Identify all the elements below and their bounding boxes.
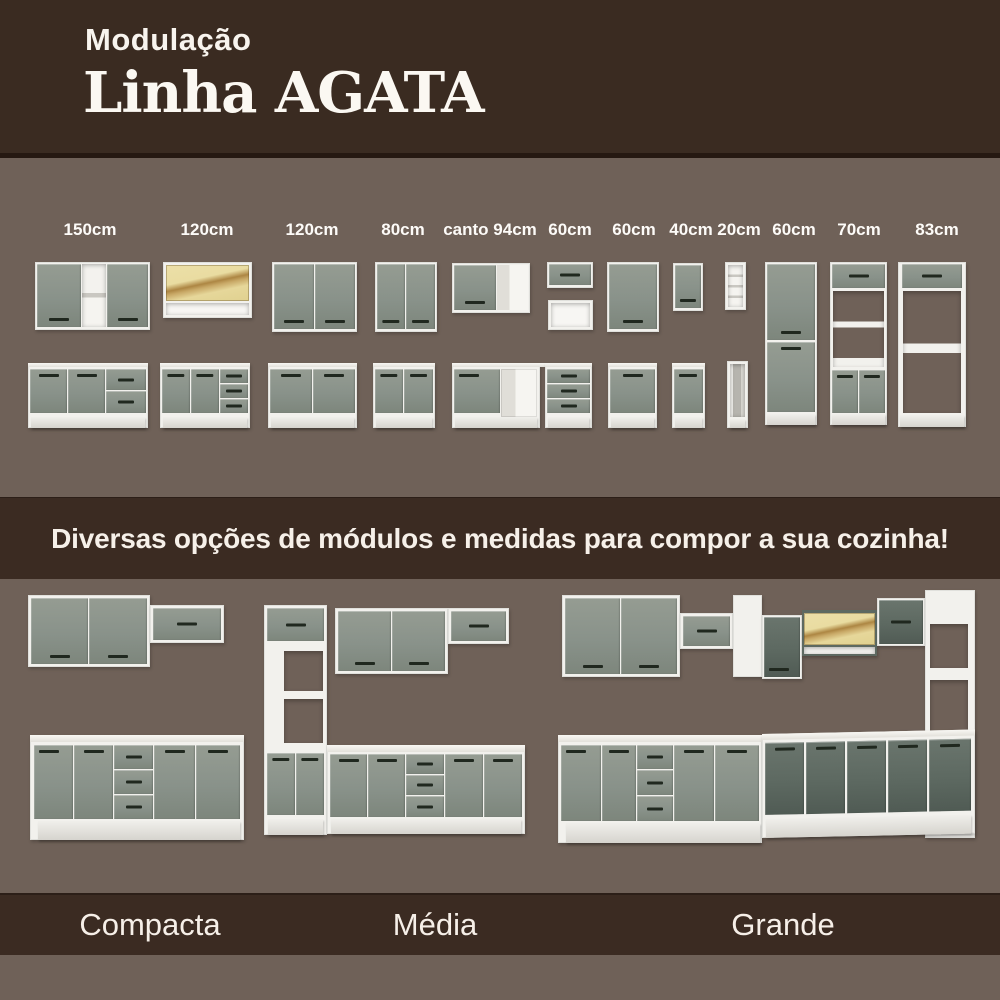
wall-corner-cabinet [762, 615, 802, 679]
cabinet-door [68, 369, 105, 413]
open-shelf [930, 624, 968, 668]
size-label-80cm: 80cm [381, 220, 424, 240]
countertop [558, 735, 762, 742]
cabinet-door [107, 264, 148, 327]
product-infographic: Modulação Linha AGATA 150cm 120cm 120cm … [0, 0, 1000, 1000]
size-label-60cm-b: 60cm [612, 220, 655, 240]
plinth [163, 417, 247, 428]
size-label-150cm: 150cm [64, 220, 117, 240]
cabinet-door [445, 754, 483, 817]
open-compartment [730, 364, 745, 417]
size-label-70cm: 70cm [837, 220, 880, 240]
countertop [160, 363, 250, 367]
drawer-front [114, 745, 153, 769]
cabinet-door [270, 369, 312, 413]
module-40cm-base-cabinet [672, 363, 705, 428]
cabinet-door [74, 745, 113, 819]
drawer-front [220, 384, 248, 398]
wall-cabinet-stepped [680, 613, 733, 649]
plinth [767, 414, 815, 425]
cabinet-door [377, 264, 405, 329]
cabinet-door [674, 745, 714, 821]
cabinet-door [859, 370, 885, 413]
module-60cm-upper-cabinet [607, 262, 659, 332]
module-20cm-base-open-unit [727, 361, 748, 428]
plinth [268, 819, 323, 835]
plinth [730, 419, 745, 428]
drawer-front [547, 369, 590, 383]
kitchen-label-compacta: Compacta [79, 895, 220, 955]
size-label-60cm-a: 60cm [548, 220, 591, 240]
drawer-front [220, 369, 248, 383]
cabinet-door [561, 745, 601, 821]
bottom-strip [0, 955, 1000, 1000]
cabinet-door [37, 264, 81, 327]
drawer-front [637, 796, 673, 821]
module-canto94-base-corner-cabinet [452, 363, 540, 428]
plinth [376, 417, 432, 428]
plinth [548, 417, 589, 428]
module-60cm-base-cabinet [608, 363, 657, 428]
module-60cm-tall-pantry-cabinet [765, 262, 817, 425]
base-cabinet-run [558, 735, 762, 843]
open-shelf [930, 680, 968, 734]
cabinet-door [31, 598, 88, 664]
cabinet-door [451, 611, 506, 641]
cabinet-door [806, 741, 845, 814]
cabinet-door [888, 740, 927, 813]
cabinet-door [683, 616, 730, 646]
cabinet-door [267, 753, 295, 815]
countertop [30, 735, 244, 742]
cabinet-door [30, 369, 67, 413]
size-label-40cm: 40cm [669, 220, 712, 240]
open-shelf [284, 651, 323, 691]
module-83cm-fridge-surround [898, 262, 966, 427]
cabinet-door [832, 264, 885, 288]
plinth [675, 417, 702, 428]
plinth [611, 417, 654, 428]
module-60cm-base-drawer-unit [545, 363, 592, 428]
wall-glass-cabinet [802, 610, 877, 656]
size-label-83cm: 83cm [915, 220, 958, 240]
cabinet-door [196, 745, 240, 819]
cabinet-door [674, 369, 703, 413]
cabinet-door [767, 342, 815, 412]
module-150cm-base-cabinet [28, 363, 148, 428]
open-shelf [166, 303, 249, 315]
drawer-front [547, 384, 590, 398]
size-label-60cm-c: 60cm [772, 220, 815, 240]
cabinet-door [621, 598, 677, 674]
corner-filler-panel [733, 595, 762, 677]
cabinet-door [610, 369, 655, 413]
cabinet-door [484, 754, 522, 817]
cabinet-door [565, 598, 620, 674]
module-40cm-upper-cabinet [673, 263, 703, 311]
cabinet-door [832, 370, 858, 413]
header-kicker: Modulação [85, 22, 251, 58]
open-fridge-space [903, 291, 961, 413]
countertop [672, 363, 705, 367]
cabinet-door [454, 265, 496, 310]
drawer-front [106, 391, 146, 413]
module-60cm-open-niche [548, 300, 593, 330]
drawer-front [637, 770, 673, 795]
drawer-front [106, 369, 146, 390]
plinth [38, 821, 240, 840]
drawer-front [114, 770, 153, 794]
plinth [31, 417, 145, 428]
cabinet-door [454, 369, 500, 413]
cabinet-door [602, 745, 636, 821]
base-cabinet-run [327, 745, 525, 834]
wall-cabinet [28, 595, 150, 667]
header-band: Modulação Linha AGATA [0, 0, 1000, 153]
flipup-door [549, 264, 591, 285]
banner-band: Diversas opções de módulos e medidas par… [0, 497, 1000, 579]
drawer-front [547, 399, 590, 413]
corner-door [501, 369, 537, 417]
open-shelf [804, 647, 875, 654]
banner-text: Diversas opções de módulos e medidas par… [0, 498, 1000, 579]
module-20cm-shelf-niche [725, 262, 746, 310]
cabinet-door [609, 264, 657, 329]
drawer-front [637, 745, 673, 769]
size-label-120cm-a: 120cm [181, 220, 234, 240]
plinth [566, 823, 760, 843]
module-120cm-glass-upper-cabinet [163, 262, 252, 318]
countertop [373, 363, 435, 367]
cabinet-door [267, 608, 324, 641]
open-oven-space [833, 291, 884, 367]
open-shelf [284, 699, 323, 743]
cabinet-door [404, 369, 433, 413]
modules-section: 150cm 120cm 120cm 80cm canto 94cm 60cm 6… [0, 158, 1000, 497]
open-niche [551, 303, 590, 327]
cabinet-door [368, 754, 405, 817]
cabinet-door [191, 369, 219, 413]
module-80cm-upper-cabinet [375, 262, 437, 332]
base-cabinet-run [30, 735, 244, 840]
countertop [327, 745, 525, 752]
plinth [900, 415, 964, 427]
cabinet-door [315, 264, 355, 329]
cabinet-door [765, 742, 804, 815]
countertop [28, 363, 148, 367]
size-label-20cm: 20cm [717, 220, 760, 240]
size-label-120cm-b: 120cm [286, 220, 339, 240]
plinth [271, 417, 354, 428]
module-150cm-upper-cabinet [35, 262, 150, 330]
drawer-front [114, 795, 153, 819]
kitchens-section [0, 578, 1000, 893]
wall-cabinet-stepped [448, 608, 509, 644]
drawer-front [220, 399, 248, 413]
cabinet-door [154, 745, 195, 819]
countertop [268, 363, 357, 367]
wall-cabinet [562, 595, 680, 677]
module-canto94-upper-corner-cabinet [452, 263, 530, 313]
kitchen-label-media: Média [393, 895, 477, 955]
cabinet-door [375, 369, 403, 413]
corner-panel [497, 265, 528, 310]
cabinet-door [715, 745, 759, 821]
countertop [608, 363, 657, 367]
cabinet-door [392, 611, 445, 671]
cabinet-door [153, 608, 221, 640]
plinth [832, 414, 885, 425]
plinth [331, 819, 521, 834]
wall-cabinet-stepped [150, 605, 224, 643]
cabinet-door [296, 753, 324, 815]
glass-door [804, 613, 875, 645]
cabinet-door [162, 369, 190, 413]
drawer-front [406, 775, 444, 795]
cabinet-door [313, 369, 355, 413]
open-shelves [728, 265, 743, 307]
module-70cm-oven-tower [830, 262, 887, 425]
cabinet-door [879, 600, 923, 644]
base-cabinet-run-right [762, 730, 975, 838]
cabinet-door [767, 264, 815, 340]
glass-door [166, 265, 249, 301]
countertop [545, 363, 592, 367]
cabinet-door [675, 265, 701, 308]
module-80cm-base-cabinet [373, 363, 435, 428]
module-120cm-base-cabinet [268, 363, 357, 428]
module-120cm-base-cabinet-drawers [160, 363, 250, 428]
cabinet-door [330, 754, 367, 817]
drawer-front [406, 754, 444, 774]
module-120cm-upper-cabinet [272, 262, 357, 332]
cabinet-door [847, 740, 886, 813]
plinth [455, 417, 537, 428]
cabinet-door [89, 598, 147, 664]
size-label-canto94: canto 94cm [443, 220, 537, 240]
page-title: Linha AGATA [83, 60, 484, 126]
cabinet-door [34, 745, 73, 819]
cabinet-door [338, 611, 391, 671]
wall-cabinet [877, 598, 925, 646]
cabinet-door [274, 264, 314, 329]
cabinet-door [902, 264, 962, 288]
module-60cm-flipup-upper-cabinet [547, 262, 593, 288]
wall-cabinet [335, 608, 448, 674]
drawer-front [406, 796, 444, 817]
tall-tower-cabinet [264, 605, 327, 835]
cabinet-door [406, 264, 435, 329]
kitchen-label-grande: Grande [731, 895, 834, 955]
cabinet-door [929, 739, 971, 812]
cabinet-door [764, 617, 800, 677]
footer-band: Compacta Média Grande [0, 893, 1000, 955]
countertop [452, 363, 545, 367]
open-niche [82, 264, 106, 327]
